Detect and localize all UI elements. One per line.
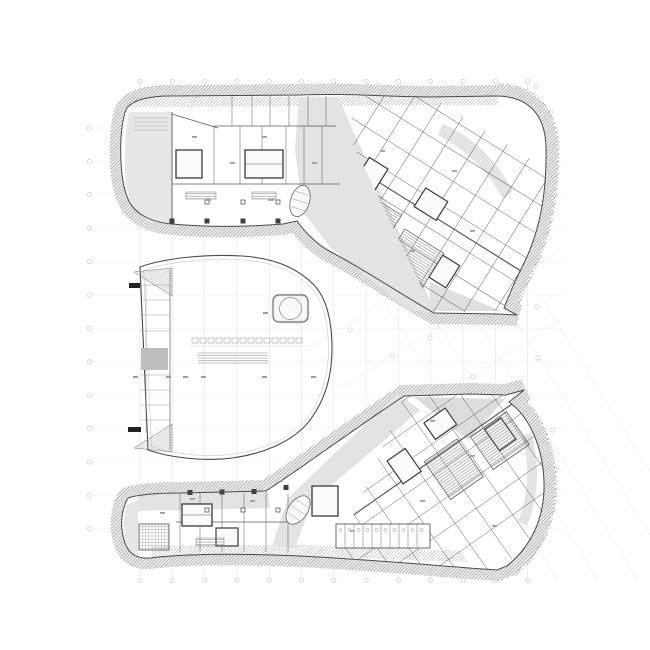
upper-wing [121, 67, 621, 382]
atrium-desk [190, 338, 310, 363]
grid-bubble [267, 578, 271, 582]
grid-bubble [461, 79, 465, 83]
grid-bubble [364, 79, 368, 83]
grid-bubble [235, 79, 239, 83]
grid-bubble [87, 527, 91, 531]
grid-bubble [396, 578, 400, 582]
lower-wing [122, 301, 647, 648]
grid-bubble [461, 578, 465, 582]
grid-bubble [138, 79, 142, 83]
grid-bubble [364, 578, 368, 582]
grid-bubble [170, 79, 174, 83]
grid-bubble [396, 79, 400, 83]
grid-bubble [429, 578, 433, 582]
grid-bubble [332, 79, 336, 83]
grid-bubble [202, 578, 206, 582]
grid-bubble [87, 226, 91, 230]
floor-plan-drawing [0, 0, 650, 650]
grid-bubble [525, 578, 529, 582]
plant-room-grid [139, 524, 169, 550]
grid-bubble [87, 460, 91, 464]
grid-bubble [267, 79, 271, 83]
service-core [176, 150, 202, 178]
atrium-south-link [128, 427, 141, 432]
toilet-row [336, 524, 430, 548]
grid-bubble [87, 159, 91, 163]
atrium-north-entry-wedge [134, 268, 172, 296]
grid-bubble [429, 79, 433, 83]
grid-bubble [87, 259, 91, 263]
grid-bubble [138, 578, 142, 582]
grid-bubble [87, 293, 91, 297]
seating-row [252, 192, 276, 199]
grid-bubble [202, 79, 206, 83]
grid-bubble [87, 126, 91, 130]
seating-row [186, 192, 216, 199]
grid-bubble [235, 578, 239, 582]
grid-bubble [87, 393, 91, 397]
grid-bubble [87, 326, 91, 330]
grid-bubble [299, 79, 303, 83]
grid-bubble [299, 578, 303, 582]
grid-bubble [87, 193, 91, 197]
atrium-stair-flight [141, 348, 168, 370]
grid-bubble [87, 360, 91, 364]
atrium-north-link [129, 283, 140, 288]
grid-bubble [87, 426, 91, 430]
atrium-pavilion [273, 295, 308, 322]
atrium-escalator-band [140, 270, 170, 450]
grid-bubble [87, 493, 91, 497]
grid-bubble [525, 79, 529, 83]
service-core [312, 486, 338, 516]
floor-plan-page [0, 0, 650, 650]
grid-bubble [332, 578, 336, 582]
grid-bubble [170, 578, 174, 582]
seating-row [196, 538, 224, 546]
